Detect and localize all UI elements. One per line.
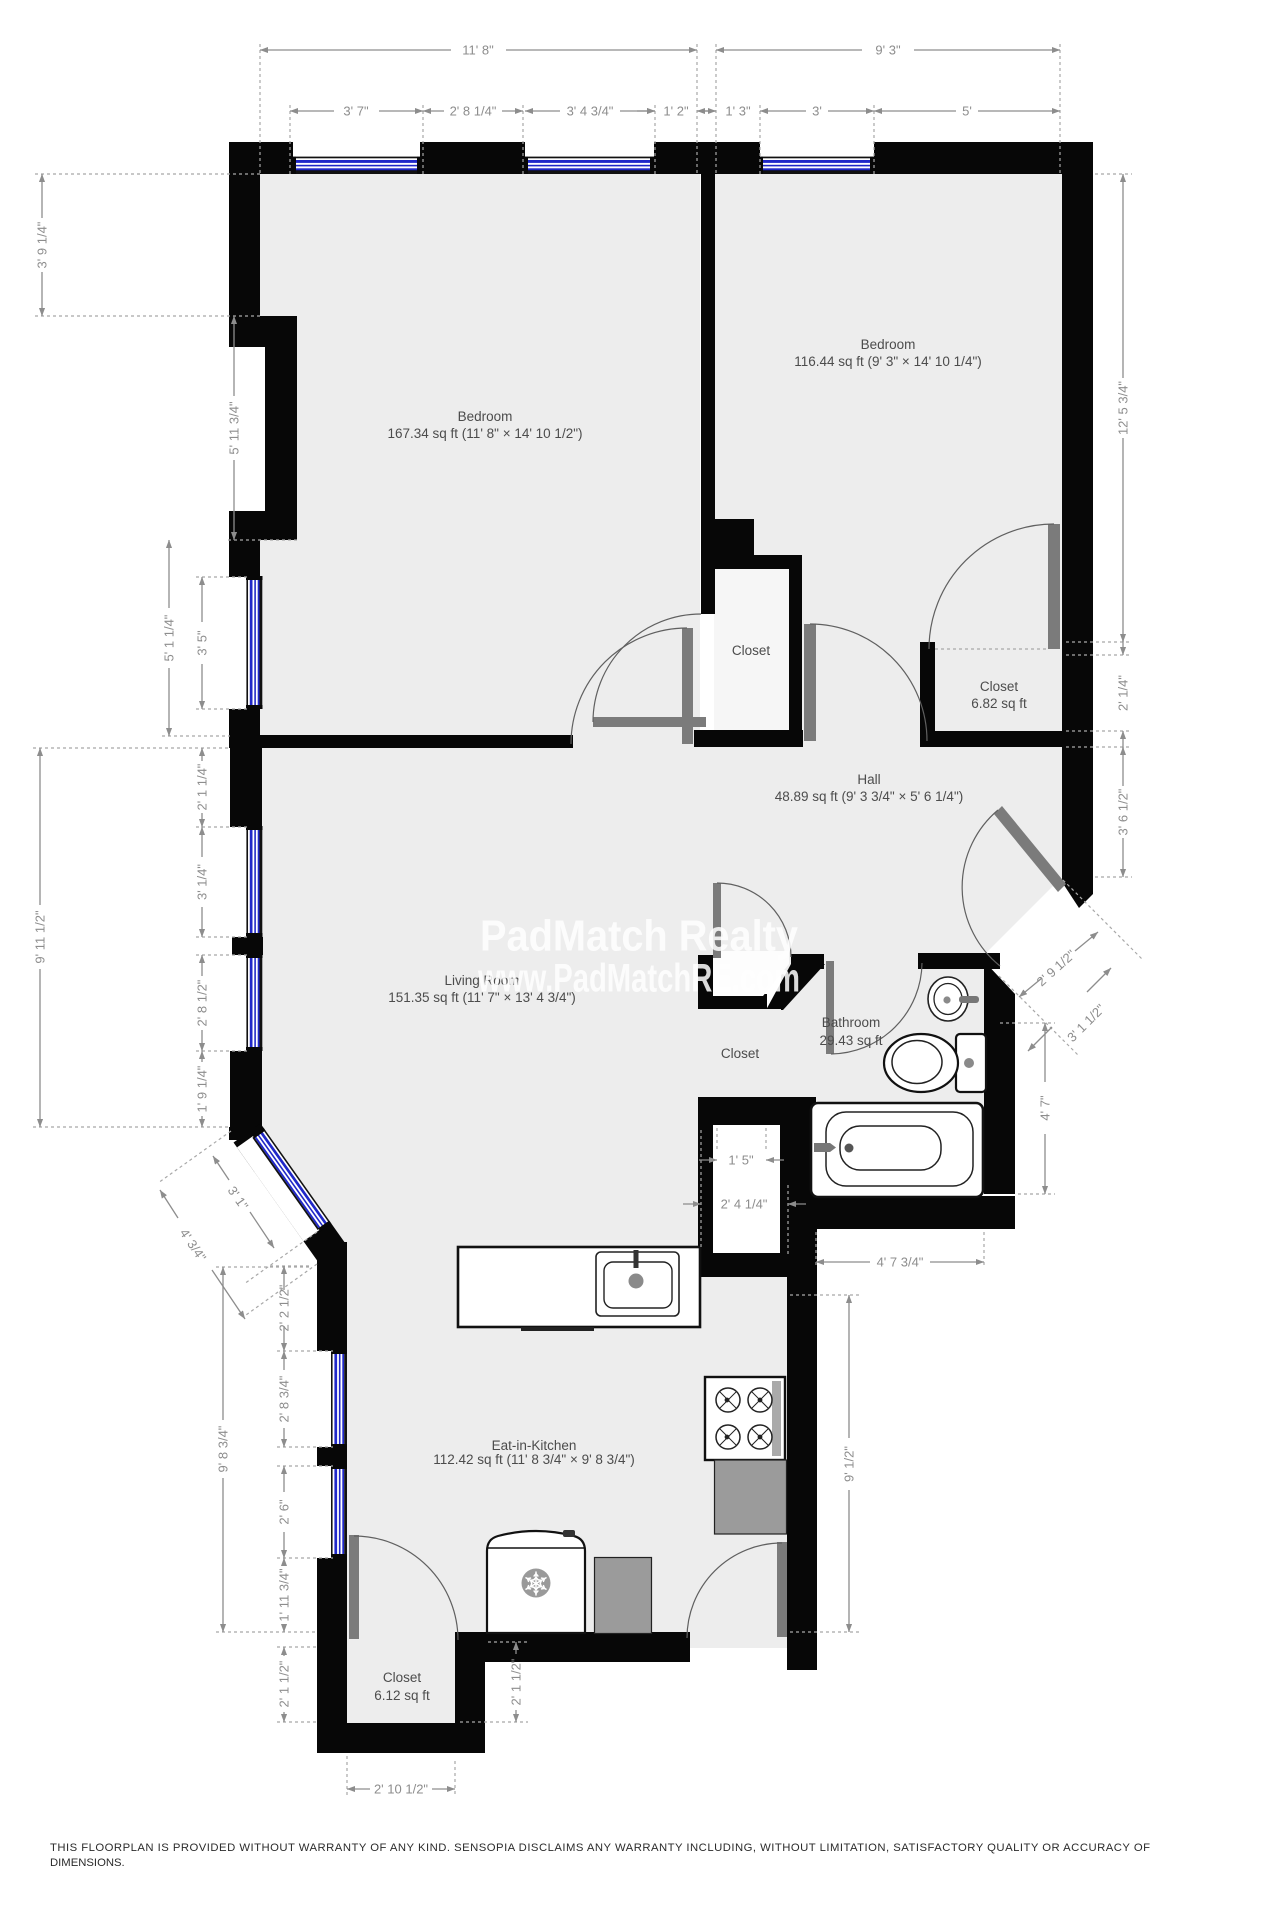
- svg-text:2' 1 1/2": 2' 1 1/2": [277, 1660, 292, 1707]
- svg-text:5' 1 1/4": 5' 1 1/4": [162, 614, 177, 661]
- svg-text:2' 1 1/4": 2' 1 1/4": [195, 763, 210, 810]
- svg-text:12' 5 3/4": 12' 5 3/4": [1116, 381, 1131, 435]
- svg-text:5' 11 3/4": 5' 11 3/4": [227, 401, 242, 455]
- svg-text:1' 3": 1' 3": [725, 104, 751, 119]
- svg-text:1' 9 1/4": 1' 9 1/4": [195, 1065, 210, 1112]
- svg-text:Closet: Closet: [732, 643, 771, 658]
- svg-text:2' 4 1/4": 2' 4 1/4": [721, 1197, 768, 1212]
- svg-text:Eat-in-Kitchen: Eat-in-Kitchen: [492, 1438, 577, 1453]
- svg-text:6.12 sq ft: 6.12 sq ft: [374, 1688, 430, 1703]
- svg-text:1' 5": 1' 5": [728, 1153, 754, 1168]
- svg-text:5': 5': [962, 104, 972, 119]
- svg-text:4' 3/4": 4' 3/4": [177, 1226, 210, 1265]
- svg-text:3' 5": 3' 5": [195, 630, 210, 656]
- svg-text:112.42 sq ft (11' 8 3/4" × 9': 112.42 sq ft (11' 8 3/4" × 9' 8 3/4"): [433, 1452, 635, 1467]
- svg-text:PadMatch Realty: PadMatch Realty: [480, 912, 798, 961]
- svg-text:48.89 sq ft (9' 3 3/4" × 5' 6: 48.89 sq ft (9' 3 3/4" × 5' 6 1/4"): [775, 789, 963, 804]
- svg-text:3': 3': [812, 104, 822, 119]
- svg-text:3' 7": 3' 7": [343, 104, 369, 119]
- svg-text:2' 1 1/2": 2' 1 1/2": [509, 1658, 524, 1705]
- svg-text:Closet: Closet: [980, 679, 1019, 694]
- svg-text:3' 1 1/2": 3' 1 1/2": [1064, 1001, 1108, 1045]
- svg-text:6.82 sq ft: 6.82 sq ft: [971, 696, 1027, 711]
- svg-text:Bedroom: Bedroom: [458, 409, 513, 424]
- svg-text:167.34 sq ft (11' 8" × 14' 10: 167.34 sq ft (11' 8" × 14' 10 1/2"): [388, 426, 583, 441]
- svg-text:www.PadMatchRE.com: www.PadMatchRE.com: [477, 957, 800, 1001]
- svg-text:2' 1/4": 2' 1/4": [1116, 675, 1131, 711]
- svg-text:Closet: Closet: [721, 1046, 760, 1061]
- svg-text:3' 9 1/4": 3' 9 1/4": [35, 221, 50, 268]
- svg-text:3' 4 3/4": 3' 4 3/4": [567, 104, 614, 119]
- svg-text:1' 11 3/4": 1' 11 3/4": [277, 1568, 292, 1622]
- svg-text:2' 2 1/2": 2' 2 1/2": [277, 1284, 292, 1331]
- svg-text:Hall: Hall: [857, 772, 880, 787]
- svg-text:4' 7 3/4": 4' 7 3/4": [877, 1255, 924, 1270]
- svg-text:Bathroom: Bathroom: [822, 1015, 881, 1030]
- svg-text:29.43 sq ft: 29.43 sq ft: [819, 1033, 882, 1048]
- svg-text:2' 8 1/4": 2' 8 1/4": [450, 104, 497, 119]
- svg-text:9' 3": 9' 3": [875, 43, 901, 58]
- svg-text:DIMENSIONS.: DIMENSIONS.: [50, 1857, 125, 1869]
- svg-text:11' 8": 11' 8": [462, 43, 494, 58]
- svg-text:3' 6 1/2": 3' 6 1/2": [1116, 788, 1131, 835]
- svg-text:4' 7": 4' 7": [1038, 1095, 1053, 1121]
- svg-text:2' 8 3/4": 2' 8 3/4": [277, 1375, 292, 1422]
- svg-text:Bedroom: Bedroom: [861, 337, 916, 352]
- svg-text:1' 2": 1' 2": [663, 104, 689, 119]
- svg-text:Closet: Closet: [383, 1670, 422, 1685]
- svg-text:9' 1/2": 9' 1/2": [842, 1446, 857, 1482]
- svg-text:9' 8 3/4": 9' 8 3/4": [216, 1425, 231, 1472]
- svg-text:2' 6": 2' 6": [277, 1499, 292, 1525]
- svg-text:3' 1/4": 3' 1/4": [195, 864, 210, 900]
- svg-text:2' 9 1/2": 2' 9 1/2": [1034, 946, 1079, 989]
- svg-text:2' 8 1/2": 2' 8 1/2": [195, 979, 210, 1026]
- svg-text:116.44 sq ft (9' 3" × 14' 10 1: 116.44 sq ft (9' 3" × 14' 10 1/4"): [794, 354, 981, 369]
- svg-text:9' 11 1/2": 9' 11 1/2": [33, 910, 48, 964]
- svg-text:THIS FLOORPLAN IS PROVIDED WIT: THIS FLOORPLAN IS PROVIDED WITHOUT WARRA…: [50, 1842, 1150, 1854]
- svg-text:2' 10 1/2": 2' 10 1/2": [374, 1782, 428, 1797]
